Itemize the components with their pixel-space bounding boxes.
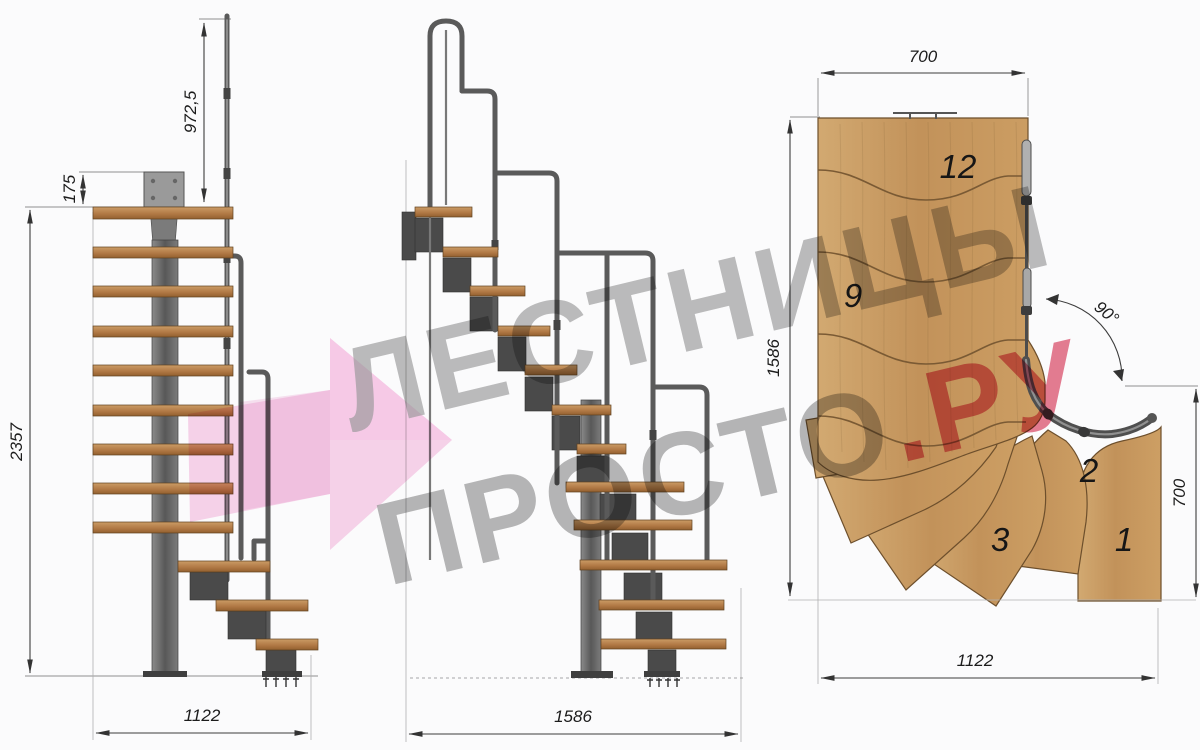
rail-sleeve xyxy=(224,88,231,99)
base-plate xyxy=(143,671,187,677)
side-elevation-view: 972,5 175 2357 1122 xyxy=(7,16,318,740)
tread-module xyxy=(228,611,266,639)
tread xyxy=(216,600,308,611)
dim-plan-bottom-width: 1122 xyxy=(957,651,994,670)
bolt-hole xyxy=(173,196,177,200)
tread xyxy=(93,522,233,533)
base-plate xyxy=(262,671,302,677)
tread xyxy=(93,326,233,337)
tread xyxy=(178,561,270,572)
tread xyxy=(93,207,233,219)
bolt-hole xyxy=(173,179,177,183)
dim-plan-top-width: 700 xyxy=(909,47,938,66)
tread-number-2: 2 xyxy=(1079,452,1098,489)
arc-arrow xyxy=(1046,294,1059,305)
anchor-bolts xyxy=(263,677,299,687)
staircase-drawing: 972,5 175 2357 1122 xyxy=(0,0,1200,750)
dim-plan-right-depth: 700 xyxy=(1170,478,1189,507)
dim-base-width: 1122 xyxy=(184,706,221,725)
tread xyxy=(93,365,233,376)
tread-number-3: 3 xyxy=(991,521,1010,558)
tread-module xyxy=(190,572,228,600)
dim-turn-angle: 90° xyxy=(1091,297,1123,328)
dim-rail-height: 972,5 xyxy=(181,90,200,133)
rail-sleeve xyxy=(224,168,231,179)
anchor-bolts xyxy=(647,678,680,687)
top-mounting-plate xyxy=(144,172,184,207)
tread xyxy=(93,286,233,297)
tread-module xyxy=(266,650,296,672)
dim-front-width: 1586 xyxy=(554,707,592,726)
tread xyxy=(256,639,318,650)
bolt-hole xyxy=(151,179,155,183)
dim-total-height: 2357 xyxy=(7,423,26,462)
dim-plate-offset: 175 xyxy=(60,174,79,203)
watermark-arrow-shade xyxy=(240,390,330,510)
bolt-hole xyxy=(151,196,155,200)
central-column xyxy=(152,240,178,676)
tread xyxy=(93,247,233,258)
base-plate xyxy=(571,671,613,678)
tread-number-1: 1 xyxy=(1115,521,1133,558)
drawing-canvas: 972,5 175 2357 1122 xyxy=(0,0,1200,750)
rail-sleeve xyxy=(224,338,231,349)
